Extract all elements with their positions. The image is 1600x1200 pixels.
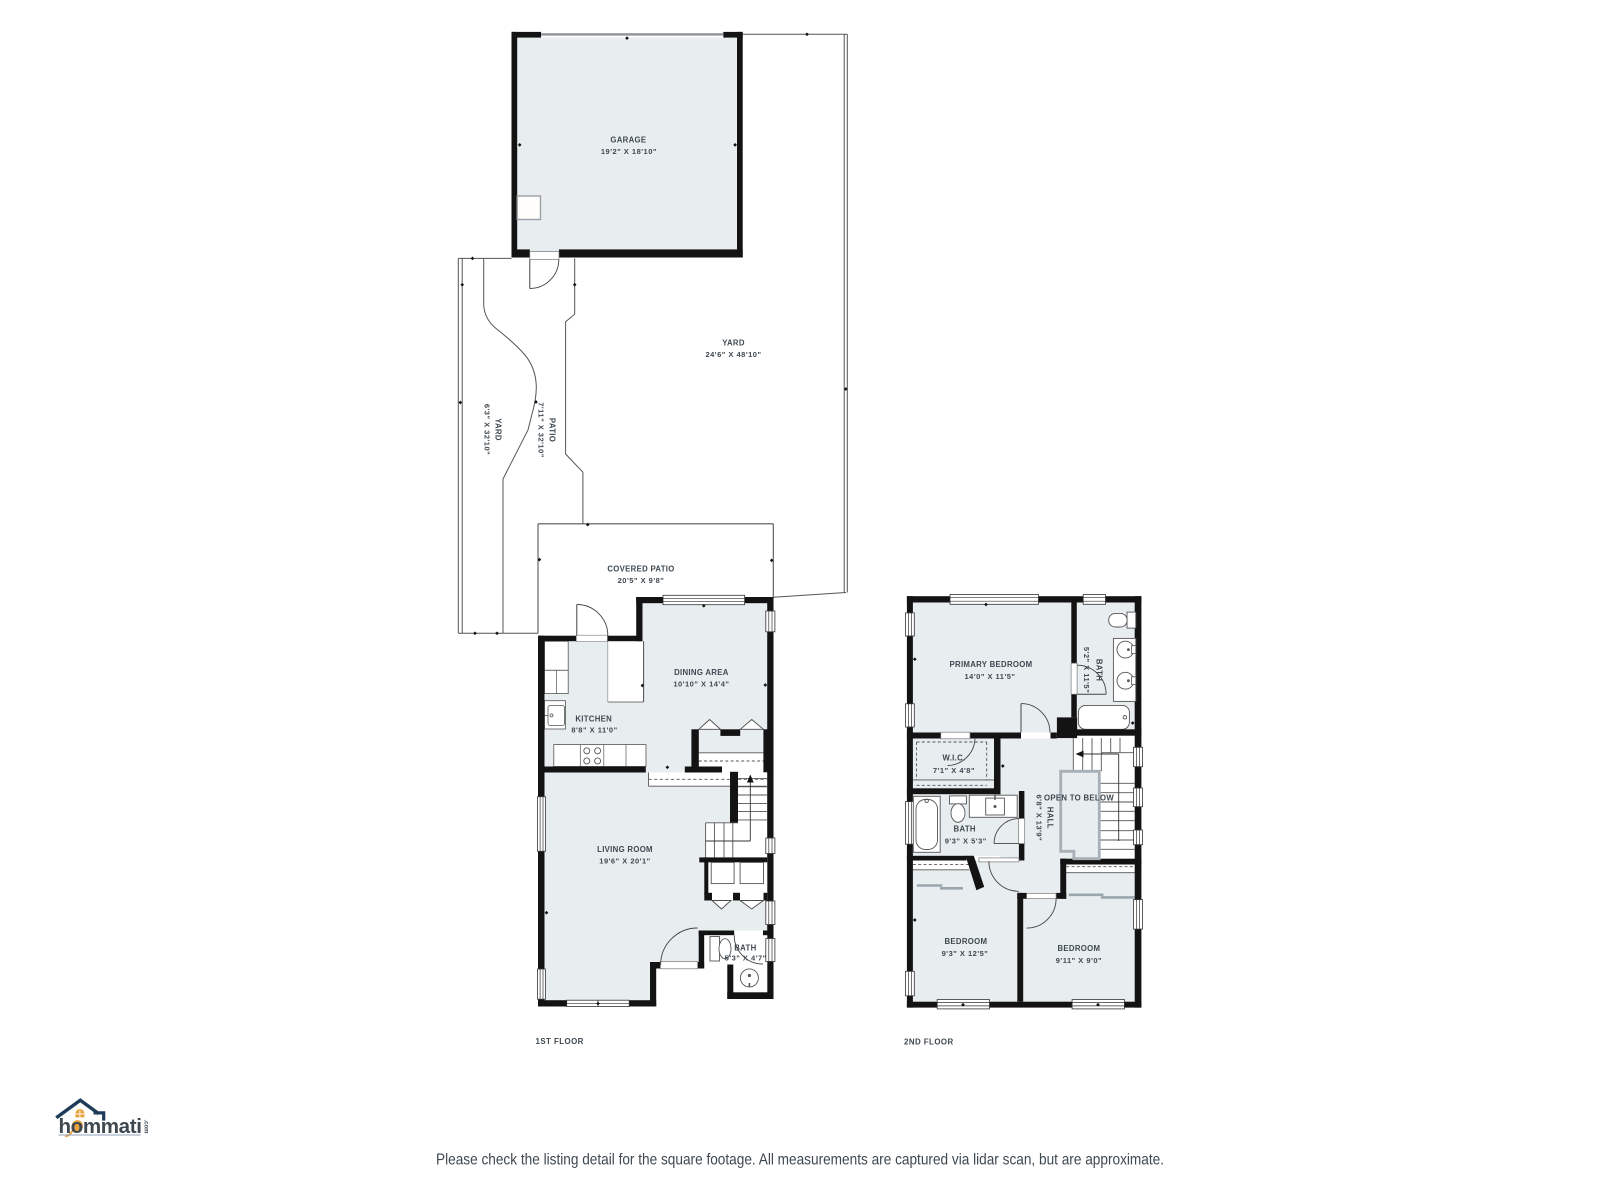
svg-text:20'5" X 9'8": 20'5" X 9'8": [618, 576, 665, 585]
svg-text:5'3" X 4'7": 5'3" X 4'7": [725, 953, 767, 962]
svg-text:KITCHEN: KITCHEN: [575, 714, 612, 723]
svg-text:2ND FLOOR: 2ND FLOOR: [904, 1038, 954, 1047]
svg-text:14'0" X 11'5": 14'0" X 11'5": [965, 672, 1016, 681]
svg-text:9'11" X 9'0": 9'11" X 9'0": [1056, 956, 1102, 965]
svg-text:YARD: YARD: [494, 418, 503, 441]
svg-text:BATH: BATH: [734, 943, 756, 952]
svg-text:19'2" X 18'10": 19'2" X 18'10": [601, 147, 657, 156]
svg-text:HALL: HALL: [1046, 807, 1055, 829]
svg-text:8'8" X 11'0": 8'8" X 11'0": [571, 725, 617, 734]
svg-text:BEDROOM: BEDROOM: [944, 937, 987, 946]
svg-text:6'3" X 32'10": 6'3" X 32'10": [483, 404, 492, 455]
svg-text:1ST FLOOR: 1ST FLOOR: [536, 1037, 584, 1046]
svg-text:BEDROOM: BEDROOM: [1057, 944, 1100, 953]
svg-text:BATH: BATH: [954, 824, 976, 833]
svg-text:OPEN TO BELOW: OPEN TO BELOW: [1044, 794, 1114, 803]
svg-text:YARD: YARD: [722, 339, 745, 348]
svg-text:.com: .com: [143, 1119, 149, 1133]
svg-text:19'6" X 20'1": 19'6" X 20'1": [599, 856, 650, 865]
svg-text:5'2" X 11'5": 5'2" X 11'5": [1082, 647, 1091, 693]
svg-text:24'6" X 48'10": 24'6" X 48'10": [705, 350, 761, 359]
svg-text:Please check the listing detai: Please check the listing detail for the …: [436, 1152, 1164, 1169]
svg-text:10'10" X 14'4": 10'10" X 14'4": [673, 680, 729, 689]
svg-text:PRIMARY BEDROOM: PRIMARY BEDROOM: [950, 660, 1033, 669]
svg-text:9'3" X 12'5": 9'3" X 12'5": [942, 949, 989, 958]
svg-text:BATH: BATH: [1095, 659, 1104, 681]
svg-text:7'11" X 32'10": 7'11" X 32'10": [537, 402, 546, 458]
svg-text:PATIO: PATIO: [548, 418, 557, 442]
svg-text:W.I.C.: W.I.C.: [942, 754, 965, 763]
svg-text:COVERED PATIO: COVERED PATIO: [607, 565, 674, 574]
svg-text:GARAGE: GARAGE: [610, 136, 646, 145]
svg-text:7'1" X 4'8": 7'1" X 4'8": [933, 766, 975, 775]
svg-text:9'3" X 5'3": 9'3" X 5'3": [945, 837, 987, 846]
svg-text:LIVING ROOM: LIVING ROOM: [597, 845, 653, 854]
svg-text:DINING AREA: DINING AREA: [674, 668, 729, 677]
svg-text:6'8" X 13'9": 6'8" X 13'9": [1035, 794, 1044, 841]
